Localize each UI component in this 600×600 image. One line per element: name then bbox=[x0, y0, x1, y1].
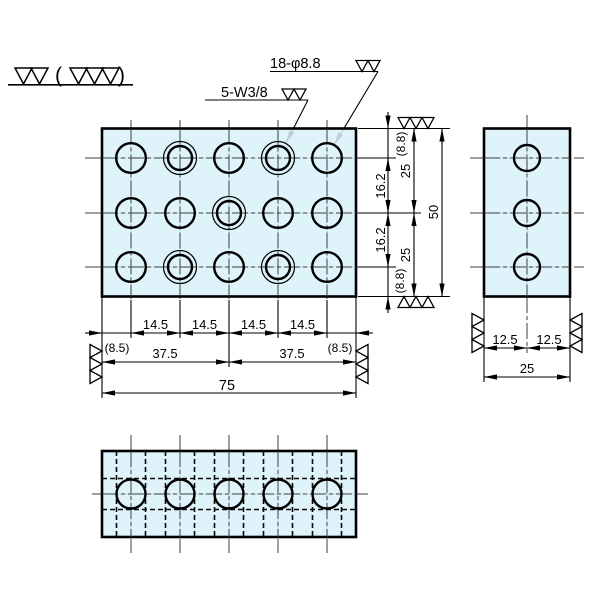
side-view bbox=[470, 115, 584, 353]
finish-triangle-icon bbox=[570, 340, 582, 353]
finish-triangle-icon bbox=[570, 314, 582, 327]
dim-half-left: 37.5 bbox=[152, 346, 177, 361]
finish-triangle-icon bbox=[356, 358, 368, 371]
bottom-view bbox=[92, 435, 368, 553]
finish-triangle-icon bbox=[282, 89, 294, 100]
finish-triangle-icon bbox=[410, 297, 422, 308]
surface-finish-note: ( ) bbox=[8, 64, 133, 87]
finish-triangle-icon bbox=[398, 118, 410, 129]
callout-threads-label: 5-W3/8 bbox=[221, 85, 268, 101]
dim-row-pitch-2: 16.2 bbox=[373, 227, 388, 252]
finish-triangle-icon bbox=[90, 345, 102, 358]
technical-drawing-page: ( ) 18-φ8.8 5-W3/8 bbox=[0, 0, 600, 600]
finish-triangle-icon bbox=[368, 61, 380, 72]
dim-pitch-3: 14.5 bbox=[241, 317, 266, 332]
callout-holes-label: 18-φ8.8 bbox=[270, 56, 321, 72]
technical-drawing-canvas: ( ) 18-φ8.8 5-W3/8 bbox=[0, 0, 600, 600]
front-view-right-dimensions: (8.8) 16.2 16.2 (8.8) 25 25 50 bbox=[358, 112, 450, 313]
dim-total-height: 50 bbox=[426, 205, 441, 219]
front-view bbox=[85, 120, 358, 300]
dim-edge-top: (8.8) bbox=[394, 132, 408, 157]
finish-triangle-icon bbox=[102, 68, 119, 84]
dim-depth-half-2: 12.5 bbox=[536, 332, 561, 347]
finish-triangle-icon bbox=[472, 314, 484, 327]
front-view-bottom-dimensions: 14.5 14.5 14.5 14.5 (8.5) (8.5) 37.5 37.… bbox=[85, 297, 373, 399]
finish-triangle-icon bbox=[356, 61, 368, 72]
finish-triangle-icon bbox=[356, 345, 368, 358]
dim-edge-bottom: (8.8) bbox=[393, 269, 407, 294]
dim-depth-total: 25 bbox=[520, 361, 534, 376]
finish-note-close-paren: ) bbox=[118, 64, 125, 87]
dim-pitch-4: 14.5 bbox=[290, 317, 315, 332]
finish-triangle-icon bbox=[398, 297, 410, 308]
finish-triangle-icon bbox=[570, 327, 582, 340]
finish-triangle-icon bbox=[90, 358, 102, 371]
dim-total-width: 75 bbox=[219, 378, 235, 394]
finish-triangle-icon bbox=[472, 327, 484, 340]
finish-triangle-icon bbox=[410, 118, 422, 129]
dim-edge-left: (8.5) bbox=[105, 341, 130, 355]
finish-triangle-icon bbox=[31, 68, 48, 84]
finish-triangle-icon bbox=[86, 68, 103, 84]
dim-half-right: 37.5 bbox=[279, 346, 304, 361]
dim-row-pitch-1: 16.2 bbox=[373, 173, 388, 198]
finish-triangle-icon bbox=[356, 371, 368, 384]
finish-note-open-paren: ( bbox=[55, 64, 62, 87]
dim-pitch-2: 14.5 bbox=[192, 317, 217, 332]
finish-triangle-icon bbox=[70, 68, 87, 84]
finish-triangle-icon bbox=[422, 297, 434, 308]
dim-edge-right: (8.5) bbox=[328, 341, 353, 355]
dim-depth-half-1: 12.5 bbox=[492, 332, 517, 347]
finish-triangle-icon bbox=[472, 340, 484, 353]
dim-height-half-2: 25 bbox=[398, 248, 413, 262]
dim-pitch-1: 14.5 bbox=[143, 317, 168, 332]
finish-triangle-icon bbox=[15, 68, 32, 84]
dim-height-half-1: 25 bbox=[398, 164, 413, 178]
finish-triangle-icon bbox=[90, 371, 102, 384]
finish-triangle-icon bbox=[422, 118, 434, 129]
finish-triangle-icon bbox=[294, 89, 306, 100]
